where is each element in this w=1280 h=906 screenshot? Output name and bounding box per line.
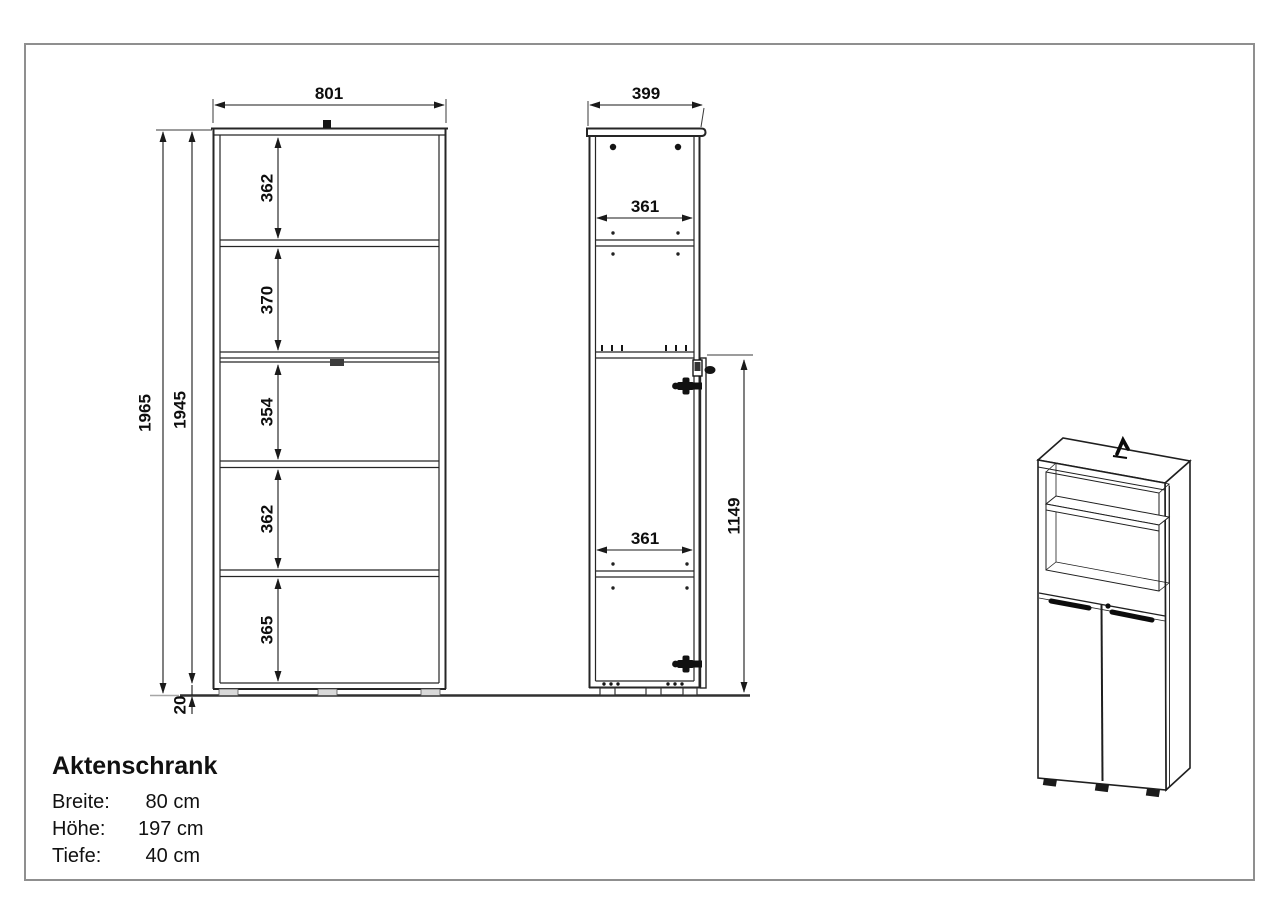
front-view: 801 1965 1945 20 362 370 354 — [136, 84, 449, 714]
dim-carcass-height-1945: 1945 — [171, 391, 190, 429]
spec-value: 40 cm — [138, 843, 200, 870]
spec-row-tiefe: Tiefe: 40 cm — [52, 843, 217, 870]
fixing-hole — [610, 144, 616, 150]
iso-view — [1038, 438, 1190, 797]
handle-mark-front — [330, 359, 344, 366]
dim-section-2: 370 — [258, 286, 277, 314]
dim-total-height-1965: 1965 — [136, 394, 155, 432]
side-view-feet — [600, 682, 697, 695]
front-view-carcass — [211, 120, 448, 689]
dim-section-1: 362 — [258, 174, 277, 202]
title-block: Aktenschrank Breite: 80 cm Höhe: 197 cm … — [52, 752, 217, 870]
spec-value: 197 cm — [138, 816, 200, 843]
anti-tip-bracket-front — [323, 120, 331, 128]
dim-inner-depth-top-361: 361 — [631, 197, 659, 216]
spec-label: Breite: — [52, 789, 138, 816]
lock-dot — [1105, 603, 1110, 608]
dim-plinth-20: 20 — [171, 696, 190, 715]
side-view-door — [693, 358, 716, 688]
hinge-bottom-icon — [672, 656, 702, 673]
side-view: 399 361 361 1149 — [587, 84, 753, 695]
spec-sheet-page: 801 1965 1945 20 362 370 354 — [0, 0, 1280, 906]
spec-value: 80 cm — [138, 789, 200, 816]
spec-row-breite: Breite: 80 cm — [52, 789, 217, 816]
dim-depth-399: 399 — [632, 84, 660, 103]
hinge-top-icon — [672, 378, 702, 395]
side-view-dimensions: 399 361 361 1149 — [588, 84, 753, 692]
product-title: Aktenschrank — [52, 752, 217, 780]
dim-inner-depth-bottom-361: 361 — [631, 529, 659, 548]
spec-label: Höhe: — [52, 816, 138, 843]
dim-section-4: 362 — [258, 505, 277, 533]
dim-width-801: 801 — [315, 84, 343, 103]
dim-door-height-1149: 1149 — [725, 498, 744, 535]
spec-row-hoehe: Höhe: 197 cm — [52, 816, 217, 843]
spec-label: Tiefe: — [52, 843, 138, 870]
fixing-hole — [675, 144, 681, 150]
dim-section-3: 354 — [258, 397, 277, 426]
dim-section-5: 365 — [258, 616, 277, 644]
front-view-dimensions: 801 1965 1945 20 362 370 354 — [136, 84, 447, 714]
front-view-shelves — [220, 240, 439, 577]
